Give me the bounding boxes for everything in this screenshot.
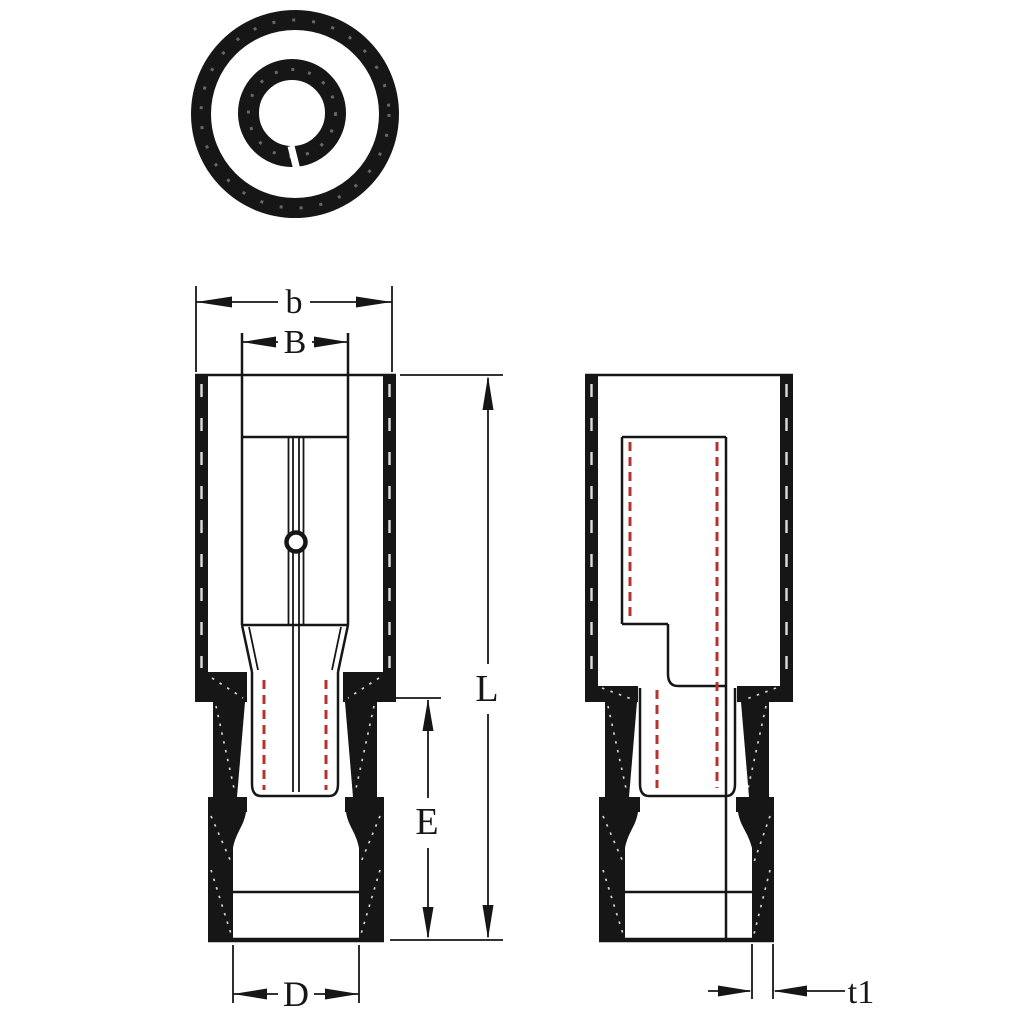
- dimension-label-b: b: [286, 284, 303, 321]
- arrowhead-down: [483, 905, 494, 939]
- dimension-L: L: [390, 375, 503, 940]
- arrowhead-right: [314, 337, 348, 348]
- side-crimp-barrel: [599, 702, 774, 940]
- crimp-barrel: [208, 702, 384, 940]
- dimension-label-t1: t1: [848, 974, 874, 1011]
- side-hidden-wire-lines: [630, 442, 717, 788]
- arrowhead-left: [196, 297, 232, 308]
- side-receptacle-profile: [622, 437, 735, 938]
- dimension-label-B: B: [284, 324, 307, 361]
- side-lower-barrel-right-wall: [738, 812, 774, 940]
- arrowhead-right-pointing: [718, 986, 752, 997]
- locking-dimple: [287, 533, 306, 552]
- arrowhead-right: [325, 989, 359, 1000]
- side-shoulder-band-right: [737, 686, 793, 702]
- side-view: [585, 375, 793, 940]
- lower-barrel-right-wall: [346, 812, 384, 940]
- arrowhead-left: [242, 337, 276, 348]
- dimension-t1: t1: [708, 944, 874, 1011]
- front-view: [195, 333, 396, 940]
- hidden-wire-lines: [264, 680, 326, 790]
- terminal-drawing-canvas: b B L E D: [0, 0, 1024, 1024]
- arrowhead-up: [483, 376, 494, 410]
- contact-slot: [289, 437, 304, 792]
- receptacle-body: [242, 333, 348, 796]
- transition-taper: [242, 625, 348, 672]
- lower-barrel-left-wall: [208, 812, 246, 940]
- dimension-B: B: [242, 324, 348, 361]
- technical-drawing-page: b B L E D: [0, 0, 1024, 1024]
- shoulder-band-left: [195, 672, 247, 702]
- dimension-label-E: E: [415, 801, 438, 843]
- top-section-view: [201, 20, 389, 208]
- dimension-E: E: [384, 698, 441, 939]
- side-insulation-sleeve: [585, 375, 793, 702]
- side-shoulder-band-left: [585, 686, 638, 702]
- side-lower-barrel-left-wall: [599, 812, 638, 940]
- side-barrel-step-left: [599, 797, 640, 812]
- side-barrel-step-right: [736, 797, 774, 812]
- arrowhead-down: [423, 907, 434, 939]
- side-upper-barrel-right-wall: [741, 702, 769, 797]
- arrowhead-left-pointing: [773, 986, 807, 997]
- arrowhead-up: [423, 699, 434, 731]
- arrowhead-right: [356, 297, 392, 308]
- dimension-label-L: L: [475, 668, 498, 710]
- side-wire-tube: [640, 688, 735, 796]
- dimension-label-D: D: [283, 974, 309, 1014]
- dimension-D: D: [233, 945, 359, 1014]
- barrel-step-right: [345, 797, 384, 812]
- barrel-step-left: [208, 797, 247, 812]
- arrowhead-left: [233, 989, 267, 1000]
